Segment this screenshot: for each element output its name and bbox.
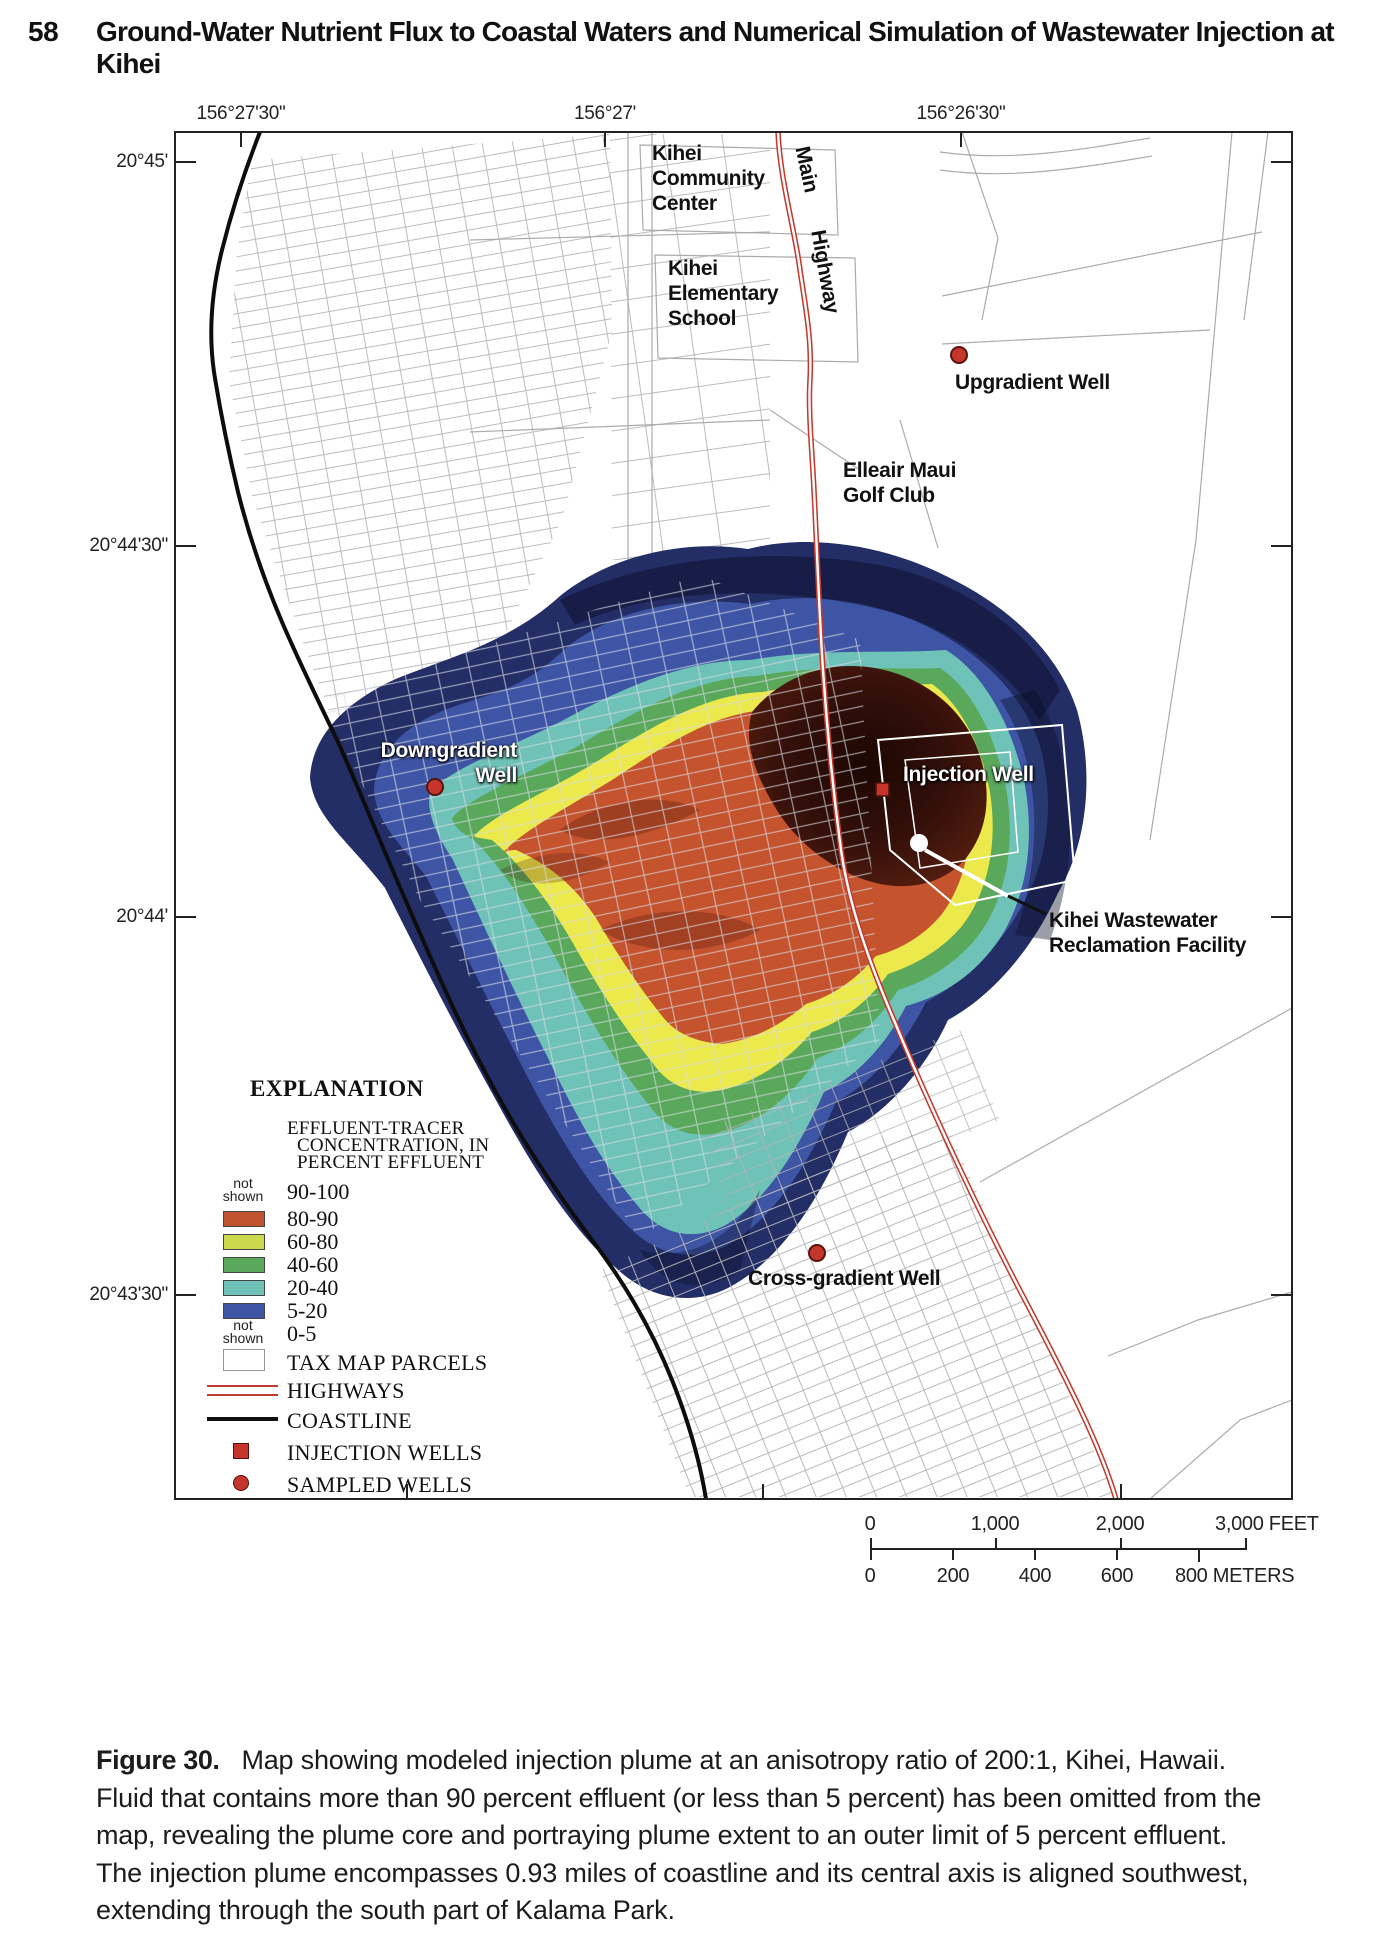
lat-label-2: 20°44'30" [58,535,168,557]
lon-label-3: 156°26'30" [917,103,1006,125]
label-cross-gradient-well: Cross-gradient Well [748,1266,940,1291]
feet-3000: 3,000 FEET [1215,1513,1319,1536]
swatch-80-90 [223,1211,265,1227]
swatch-60-80 [223,1234,265,1250]
kwrf-marker [910,834,928,852]
meters-400: 400 [1019,1565,1051,1588]
legend-subtitle: EFFLUENT-TRACER CONCENTRATION, IN PERCEN… [287,1120,489,1171]
label-downgradient-well: Downgradient Well [377,738,517,788]
lat-label-3: 20°44' [58,906,168,928]
lon-label-1: 156°27'30" [197,103,286,125]
figure-caption: Figure 30. Map showing modeled injection… [96,1742,1311,1930]
meters-200: 200 [937,1565,969,1588]
meters-0: 0 [865,1565,876,1588]
highway-symbol [207,1385,278,1396]
label-golf-club: Elleair Maui Golf Club [843,458,956,508]
caption-line-3: map, revealing the plume core and portra… [96,1817,1311,1855]
swatch-20-40 [223,1280,265,1296]
scale-bar: 0 1,000 2,000 3,000 FEET 0 200 400 600 8… [840,1505,1360,1595]
legend-title: EXPLANATION [250,1076,424,1102]
feet-0: 0 [865,1513,876,1536]
report-page: 58 Ground-Water Nutrient Flux to Coastal… [0,0,1374,1948]
swatch-40-60 [223,1257,265,1273]
sampled-well-symbol [233,1475,249,1491]
label-kihei-elementary-school: Kihei Elementary School [668,256,778,331]
caption-line-1: Figure 30. Map showing modeled injection… [96,1742,1311,1780]
injection-well-symbol [233,1443,249,1459]
caption-line-2: Fluid that contains more than 90 percent… [96,1780,1311,1818]
meters-600: 600 [1101,1565,1133,1588]
not-shown-note-2: notshown [209,1319,277,1345]
lat-label-1: 20°45' [58,151,168,173]
tax-parcel-symbol [223,1349,265,1371]
coastline-symbol [207,1417,278,1421]
lon-label-2: 156°27' [574,103,636,125]
label-kwrf: Kihei Wastewater Reclamation Facility [1049,908,1246,958]
label-kihei-community-center: Kihei Community Center [652,141,765,216]
not-shown-note: notshown [209,1177,277,1203]
caption-line-5: extending through the south part of Kala… [96,1892,1311,1930]
cross-gradient-well-marker [809,1245,825,1261]
feet-1000: 1,000 [971,1513,1020,1536]
legend: EXPLANATION EFFLUENT-TRACER CONCENTRATIO… [195,1070,505,1510]
lat-label-4: 20°43'30" [58,1284,168,1306]
upgradient-well-marker [951,347,967,363]
injection-well-marker [876,783,889,796]
label-upgradient-well: Upgradient Well [955,370,1110,395]
meters-800: 800 METERS [1175,1565,1294,1588]
scale-bar-line [870,1548,1247,1550]
caption-line-4: The injection plume encompasses 0.93 mil… [96,1855,1311,1893]
feet-2000: 2,000 [1096,1513,1145,1536]
label-injection-well: Injection Well [903,762,1034,787]
figure-number: Figure 30. [96,1745,220,1775]
